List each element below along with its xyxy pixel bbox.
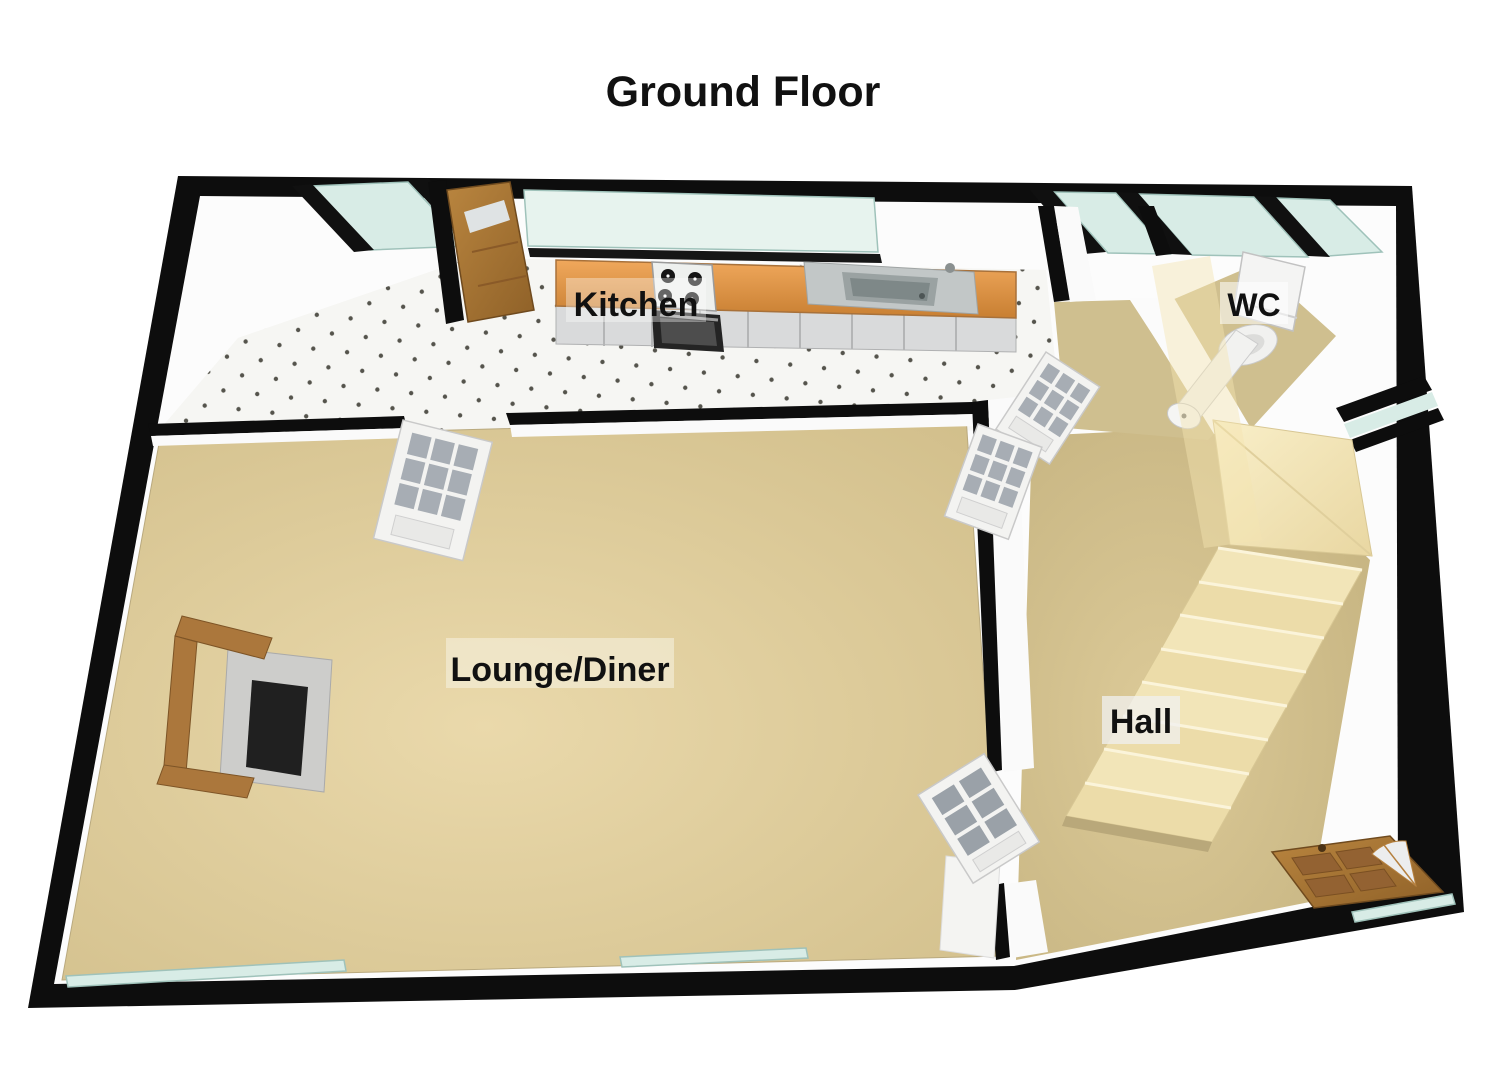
hall-label: Hall <box>1110 703 1172 741</box>
floor-plan: Kitchen WC Lounge/Diner Hall Ground Floo… <box>0 0 1486 1080</box>
sink-drain <box>919 293 925 299</box>
floor-plan-page: Kitchen WC Lounge/Diner Hall Ground Floo… <box>0 0 1486 1080</box>
lounge-floor <box>62 416 1002 980</box>
tv-screen <box>246 680 308 776</box>
front-door-handle <box>1318 844 1326 852</box>
kitchen-label: Kitchen <box>574 286 699 324</box>
page-title: Ground Floor <box>606 68 881 116</box>
sink-tap <box>945 263 955 273</box>
wc-label: WC <box>1227 287 1280 323</box>
window-glass-kitchen-main <box>524 190 878 252</box>
lounge-diner-label: Lounge/Diner <box>450 651 669 689</box>
